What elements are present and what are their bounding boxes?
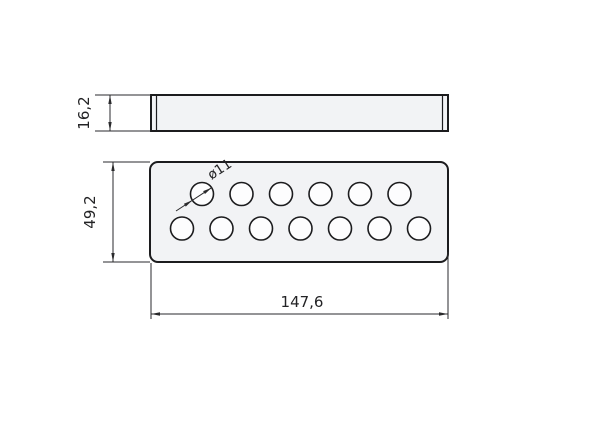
dimension-label-thickness: 16,2: [75, 96, 93, 129]
dimension-arrowhead: [108, 122, 111, 131]
hole-circle: [171, 217, 194, 240]
hole-circle: [388, 183, 411, 206]
hole-circle: [270, 183, 293, 206]
hole-circle: [230, 183, 253, 206]
dimension-label-width: 49,2: [81, 195, 99, 228]
hole-circle: [368, 217, 391, 240]
hole-circle: [210, 217, 233, 240]
dimension-arrowhead: [151, 312, 160, 315]
dimension-arrowhead: [108, 95, 111, 104]
dimension-arrowhead: [111, 253, 114, 262]
plate-outline: [150, 162, 448, 262]
top-view: [150, 162, 448, 262]
hole-circle: [329, 217, 352, 240]
hole-circle: [289, 217, 312, 240]
hole-circle: [250, 217, 273, 240]
dimension-width: 49,2: [81, 162, 150, 262]
hole-circle: [309, 183, 332, 206]
hole-circle: [349, 183, 372, 206]
side-view: [151, 95, 448, 131]
dimension-arrowhead: [111, 162, 114, 171]
hole-circle: [408, 217, 431, 240]
technical-drawing-canvas: 16,249,2147,6ø11: [0, 0, 600, 424]
dimension-thickness: 16,2: [75, 95, 151, 131]
dimension-label-length: 147,6: [281, 293, 324, 311]
side-view-outline: [151, 95, 448, 131]
drawing-svg: 16,249,2147,6ø11: [0, 0, 600, 424]
dimension-arrowhead: [439, 312, 448, 315]
